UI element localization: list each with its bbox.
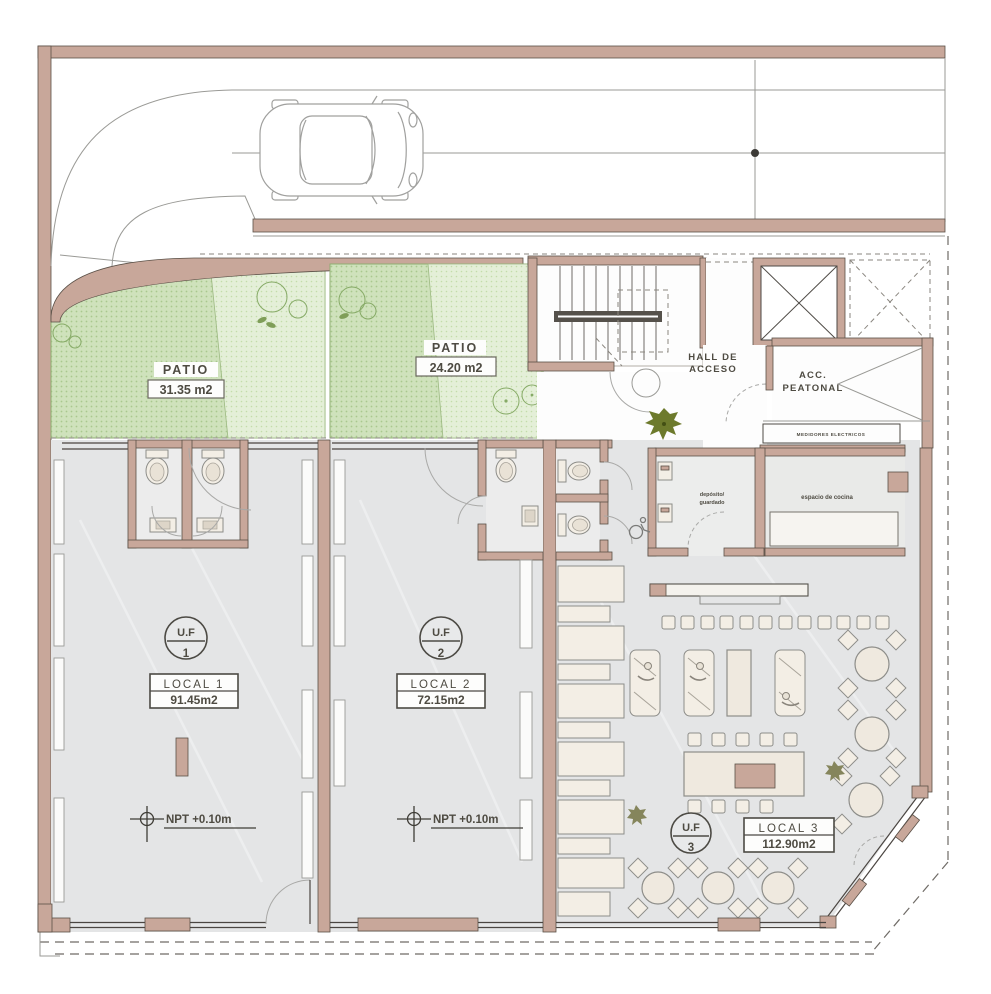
local2-area: 72.15m2 [417,693,465,707]
floor-plan-drawing: PATIO 31.35 m2 PATIO 24.20 m2 HALL DE AC… [0,0,991,994]
uf1-number: 1 [183,648,190,660]
uf2-badge: U.F 2 [420,617,462,660]
local1-area: 91.45m2 [170,693,218,707]
local3-name: LOCAL 3 [759,823,820,835]
patio2-area: 24.20 m2 [430,361,483,375]
deposito-label-2: guardado [699,500,725,506]
local1-badge: LOCAL 1 91.45m2 [150,674,238,708]
sidewalk-band [253,219,945,232]
uf3-label: U.F [682,822,700,834]
hall-label-2: ACCESO [689,364,737,375]
acc-label-2: PEATONAL [783,383,844,394]
uf2-label: U.F [432,627,450,639]
uf1-label: U.F [177,627,195,639]
patio1-area: 31.35 m2 [160,383,213,397]
local2-name: LOCAL 2 [411,679,472,691]
driveway [51,60,945,266]
car-top-view-icon [260,96,423,204]
acc-label-1: ACC. [799,370,827,381]
shaft-dashed [850,260,930,344]
deposito-label-1: depósito/ [700,492,725,498]
uf3-badge: U.F 3 [671,813,711,854]
cocina-label: espacio de cocina [801,495,853,501]
local1-npt-label: NPT +0.10m [166,814,232,826]
local3-area: 112.90m2 [762,837,816,851]
stairs [528,256,706,371]
local1-column [176,738,188,776]
uf3-number: 3 [688,842,694,854]
uf2-number: 2 [438,648,444,660]
local1-bathrooms [128,440,248,548]
hall-label-1: HALL DE [688,352,737,363]
patio2-label: PATIO [432,341,478,355]
kitchen-row: depósito/ guardado espacio de cocina [648,448,908,556]
local3-badge: LOCAL 3 112.90m2 [744,818,834,852]
medidores-label: MEDIDORES ELECTRICOS [797,432,866,437]
floor-plan-page: PATIO 31.35 m2 PATIO 24.20 m2 HALL DE AC… [0,0,991,994]
uf1-badge: U.F 1 [165,617,207,660]
patio-2: PATIO 24.20 m2 [330,264,543,438]
local1-name: LOCAL 1 [164,679,225,691]
patio1-label: PATIO [163,363,209,377]
entrance-strip-floor [706,258,757,348]
local2-badge: LOCAL 2 72.15m2 [397,674,485,708]
elevator [753,258,845,348]
local2-npt-label: NPT +0.10m [433,814,499,826]
medidores-box: MEDIDORES ELECTRICOS [760,421,930,452]
street-reference-dot [751,149,759,157]
